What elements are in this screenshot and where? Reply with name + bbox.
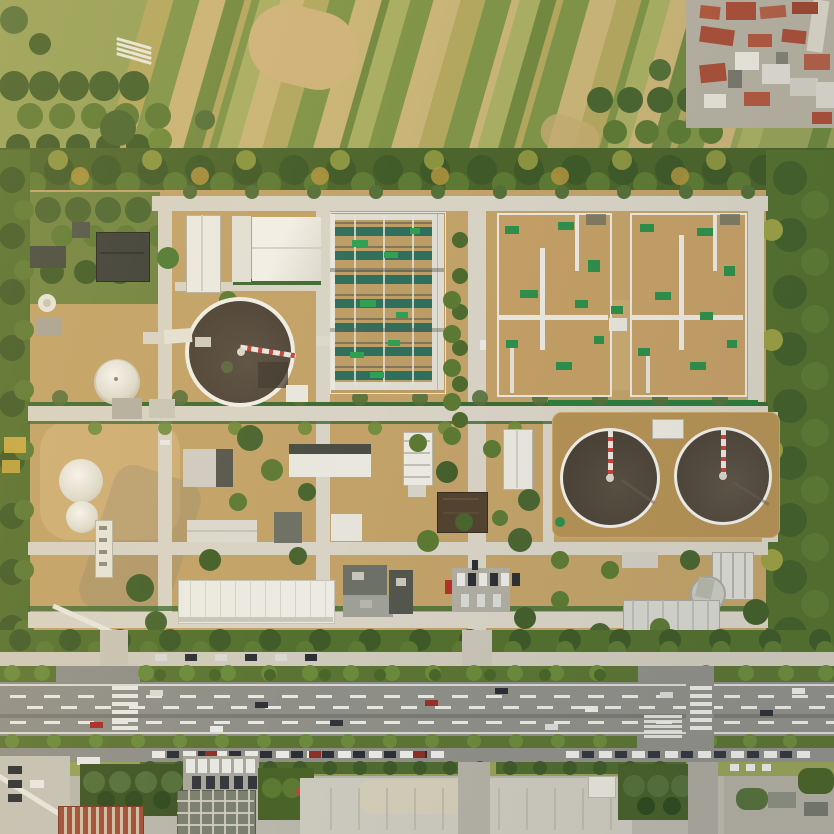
sunlight-tint-overlay (0, 0, 834, 834)
aerial-photo-wastewater-treatment-plant (0, 0, 834, 834)
